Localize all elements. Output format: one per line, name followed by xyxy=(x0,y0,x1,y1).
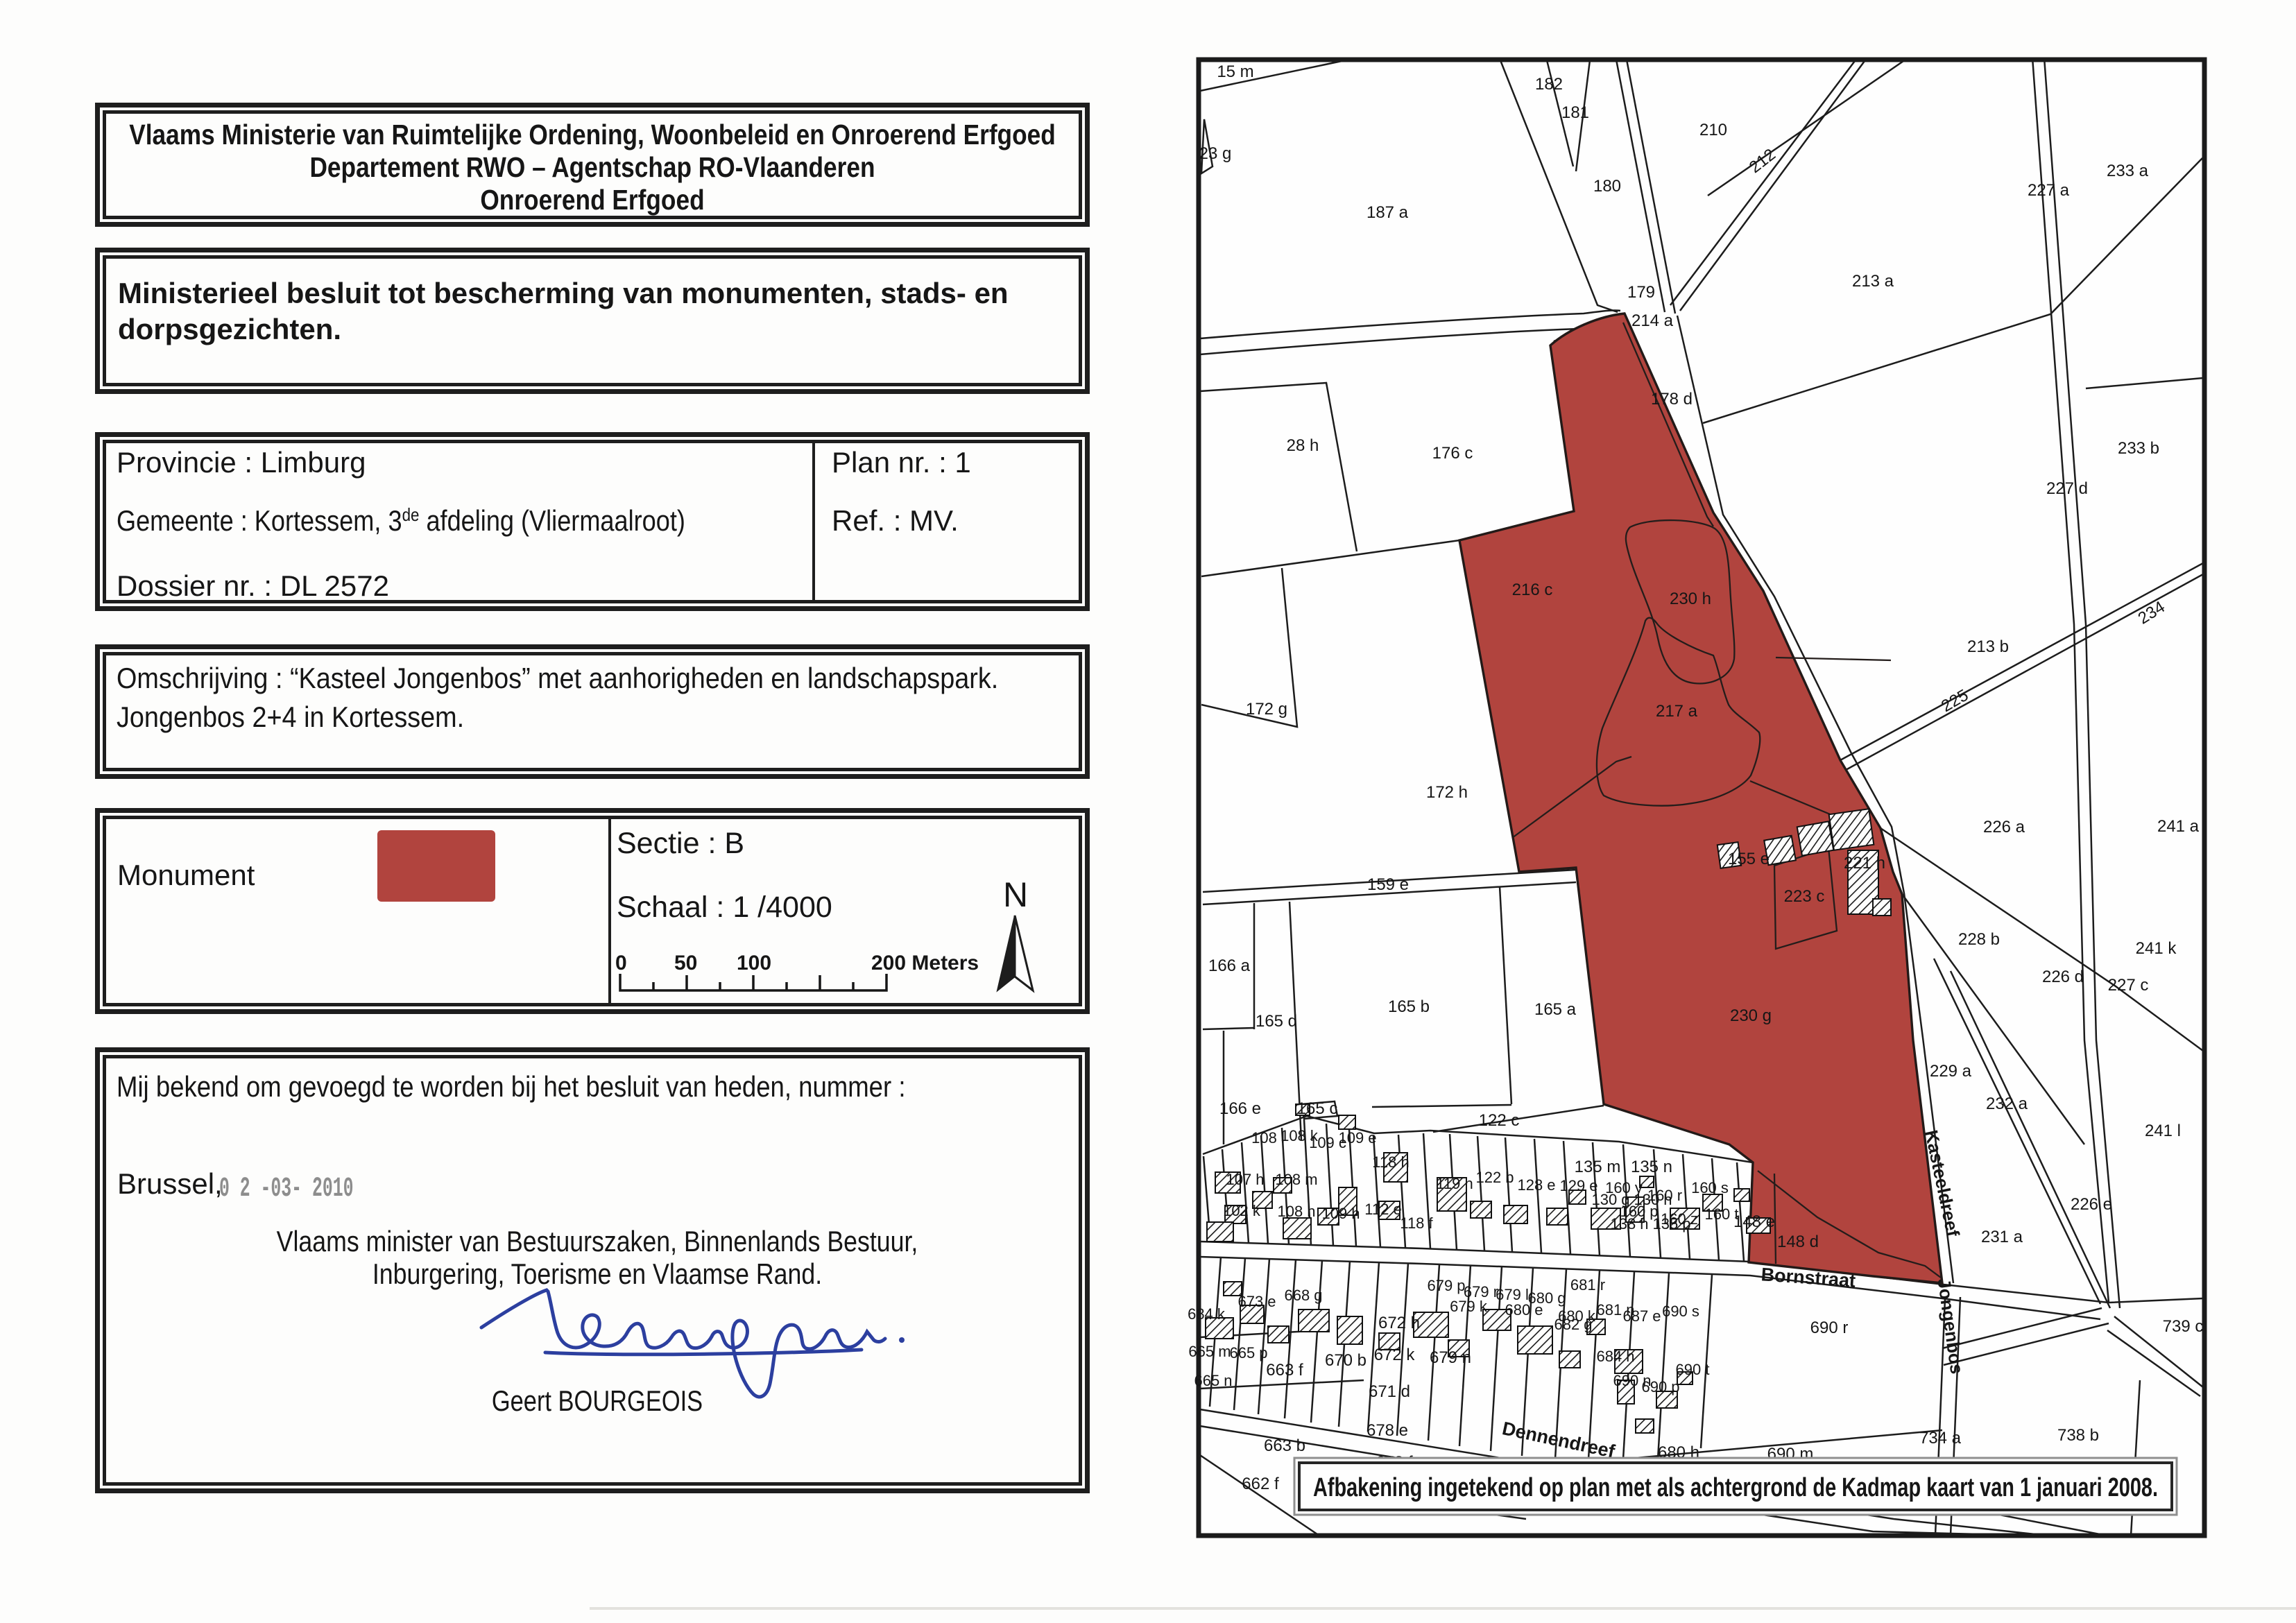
svg-text:679 n: 679 n xyxy=(1430,1348,1471,1367)
svg-text:684 k: 684 k xyxy=(1188,1305,1226,1323)
svg-text:216 c: 216 c xyxy=(1512,581,1553,599)
svg-text:680 k: 680 k xyxy=(1558,1307,1596,1325)
svg-text:108 l: 108 l xyxy=(1251,1129,1285,1147)
svg-text:166 e: 166 e xyxy=(1219,1099,1261,1118)
svg-text:739 c: 739 c xyxy=(2163,1317,2204,1336)
svg-text:213 a: 213 a xyxy=(1852,272,1894,291)
svg-text:233 b: 233 b xyxy=(2118,439,2159,458)
svg-text:690 s: 690 s xyxy=(1662,1303,1699,1320)
svg-text:226 e: 226 e xyxy=(2071,1195,2112,1214)
svg-text:690 r: 690 r xyxy=(1810,1319,1849,1337)
svg-text:166 a: 166 a xyxy=(1208,956,1251,975)
svg-text:663 b: 663 b xyxy=(1264,1436,1305,1455)
svg-text:165 a: 165 a xyxy=(1534,1000,1577,1019)
svg-text:128 e: 128 e xyxy=(1517,1176,1555,1194)
svg-text:227 d: 227 d xyxy=(2046,479,2088,498)
svg-text:172 g: 172 g xyxy=(1246,700,1287,719)
svg-text:178 d: 178 d xyxy=(1651,390,1693,409)
svg-text:671 d: 671 d xyxy=(1369,1382,1410,1401)
svg-text:680 e: 680 e xyxy=(1505,1301,1543,1319)
svg-text:241 a: 241 a xyxy=(2157,817,2200,836)
svg-text:108 h: 108 h xyxy=(1277,1203,1315,1220)
svg-text:665 m: 665 m xyxy=(1188,1343,1231,1360)
svg-text:122 c: 122 c xyxy=(1479,1111,1520,1130)
svg-text:690 p: 690 p xyxy=(1641,1378,1679,1396)
svg-text:221 h: 221 h xyxy=(1844,854,1885,873)
svg-text:148 d: 148 d xyxy=(1777,1233,1819,1251)
svg-text:200 Meters: 200 Meters xyxy=(871,952,979,974)
svg-text:217 a: 217 a xyxy=(1656,702,1698,721)
svg-text:160 z: 160 z xyxy=(1661,1210,1698,1228)
svg-text:109 c: 109 c xyxy=(1309,1134,1346,1151)
svg-text:155 e: 155 e xyxy=(1728,850,1770,868)
svg-text:241 l: 241 l xyxy=(2145,1122,2181,1140)
svg-text:228 b: 228 b xyxy=(1958,930,2000,949)
svg-text:165 b: 165 b xyxy=(1388,997,1430,1016)
svg-text:119 h: 119 h xyxy=(1436,1175,1473,1192)
svg-text:148 e: 148 e xyxy=(1733,1212,1775,1231)
svg-text:0: 0 xyxy=(615,952,627,974)
svg-text:678 e: 678 e xyxy=(1367,1421,1408,1440)
svg-text:122 b: 122 b xyxy=(1475,1169,1514,1186)
svg-text:135 n: 135 n xyxy=(1631,1158,1672,1176)
svg-text:100: 100 xyxy=(737,952,771,974)
svg-text:662 f: 662 f xyxy=(1242,1475,1279,1493)
svg-text:28 h: 28 h xyxy=(1287,436,1319,455)
svg-text:679 k: 679 k xyxy=(1450,1298,1488,1315)
svg-text:233 a: 233 a xyxy=(2107,162,2149,180)
svg-text:107 h: 107 h xyxy=(1226,1171,1264,1188)
svg-text:160 p: 160 p xyxy=(1620,1203,1658,1220)
svg-text:109 h: 109 h xyxy=(1321,1205,1360,1222)
svg-text:50: 50 xyxy=(674,952,697,974)
svg-text:213 b: 213 b xyxy=(1967,637,2009,656)
svg-text:108 m: 108 m xyxy=(1275,1171,1317,1188)
svg-text:160 t: 160 t xyxy=(1705,1205,1739,1223)
svg-text:672 h: 672 h xyxy=(1378,1314,1420,1332)
svg-text:227 c: 227 c xyxy=(2108,976,2149,995)
svg-text:15 m: 15 m xyxy=(1217,62,1253,81)
svg-text:165 d: 165 d xyxy=(1256,1012,1297,1031)
svg-text:738 b: 738 b xyxy=(2057,1426,2099,1445)
svg-text:684 h: 684 h xyxy=(1596,1348,1634,1365)
svg-text:665 p: 665 p xyxy=(1229,1344,1267,1362)
svg-text:214 a: 214 a xyxy=(1631,311,1674,330)
svg-text:118 h: 118 h xyxy=(1372,1153,1409,1171)
svg-text:227 a: 227 a xyxy=(2028,181,2070,200)
svg-text:182: 182 xyxy=(1535,75,1563,94)
svg-text:672 k: 672 k xyxy=(1374,1346,1416,1364)
svg-text:180: 180 xyxy=(1593,177,1621,196)
svg-text:665 n: 665 n xyxy=(1194,1372,1232,1389)
svg-text:679 p: 679 p xyxy=(1427,1277,1465,1294)
svg-text:670 b: 670 b xyxy=(1325,1351,1367,1370)
svg-text:241 k: 241 k xyxy=(2136,939,2177,958)
svg-text:176 c: 176 c xyxy=(1432,444,1473,463)
svg-text:135 m: 135 m xyxy=(1575,1158,1621,1176)
svg-text:160 s: 160 s xyxy=(1691,1179,1729,1196)
svg-text:112 e: 112 e xyxy=(1364,1201,1401,1218)
svg-text:687 e: 687 e xyxy=(1622,1307,1661,1325)
svg-text:210: 210 xyxy=(1699,121,1727,139)
svg-text:230 h: 230 h xyxy=(1670,590,1711,608)
svg-text:160 r: 160 r xyxy=(1647,1187,1682,1204)
svg-text:165 c: 165 c xyxy=(1297,1099,1338,1118)
svg-text:226 a: 226 a xyxy=(1983,818,2025,836)
svg-text:673 e: 673 e xyxy=(1237,1293,1276,1310)
svg-text:181: 181 xyxy=(1561,103,1589,122)
svg-text:118 f: 118 f xyxy=(1400,1214,1433,1232)
svg-text:668 g: 668 g xyxy=(1284,1287,1322,1304)
svg-text:734 a: 734 a xyxy=(1919,1429,1962,1448)
svg-text:226 d: 226 d xyxy=(2042,968,2084,986)
svg-text:159 e: 159 e xyxy=(1367,875,1409,894)
svg-text:663 f: 663 f xyxy=(1266,1361,1303,1380)
svg-text:681 r: 681 r xyxy=(1570,1276,1605,1294)
svg-text:102 k: 102 k xyxy=(1223,1202,1261,1219)
svg-text:229 a: 229 a xyxy=(1930,1062,1972,1081)
svg-text:160 y: 160 y xyxy=(1605,1179,1643,1196)
svg-text:N: N xyxy=(1003,875,1028,914)
svg-text:Afbakening ingetekend op plan: Afbakening ingetekend op plan met als ac… xyxy=(1313,1473,2158,1502)
svg-text:179: 179 xyxy=(1627,283,1655,302)
svg-text:690 t: 690 t xyxy=(1676,1361,1710,1378)
svg-text:223 c: 223 c xyxy=(1784,887,1825,906)
svg-text:172 h: 172 h xyxy=(1426,783,1468,802)
svg-text:232 a: 232 a xyxy=(1986,1094,2028,1113)
svg-text:23 g: 23 g xyxy=(1199,144,1232,163)
svg-text:230 g: 230 g xyxy=(1730,1006,1772,1025)
svg-text:231 a: 231 a xyxy=(1981,1228,2023,1246)
svg-text:187 a: 187 a xyxy=(1367,203,1409,222)
